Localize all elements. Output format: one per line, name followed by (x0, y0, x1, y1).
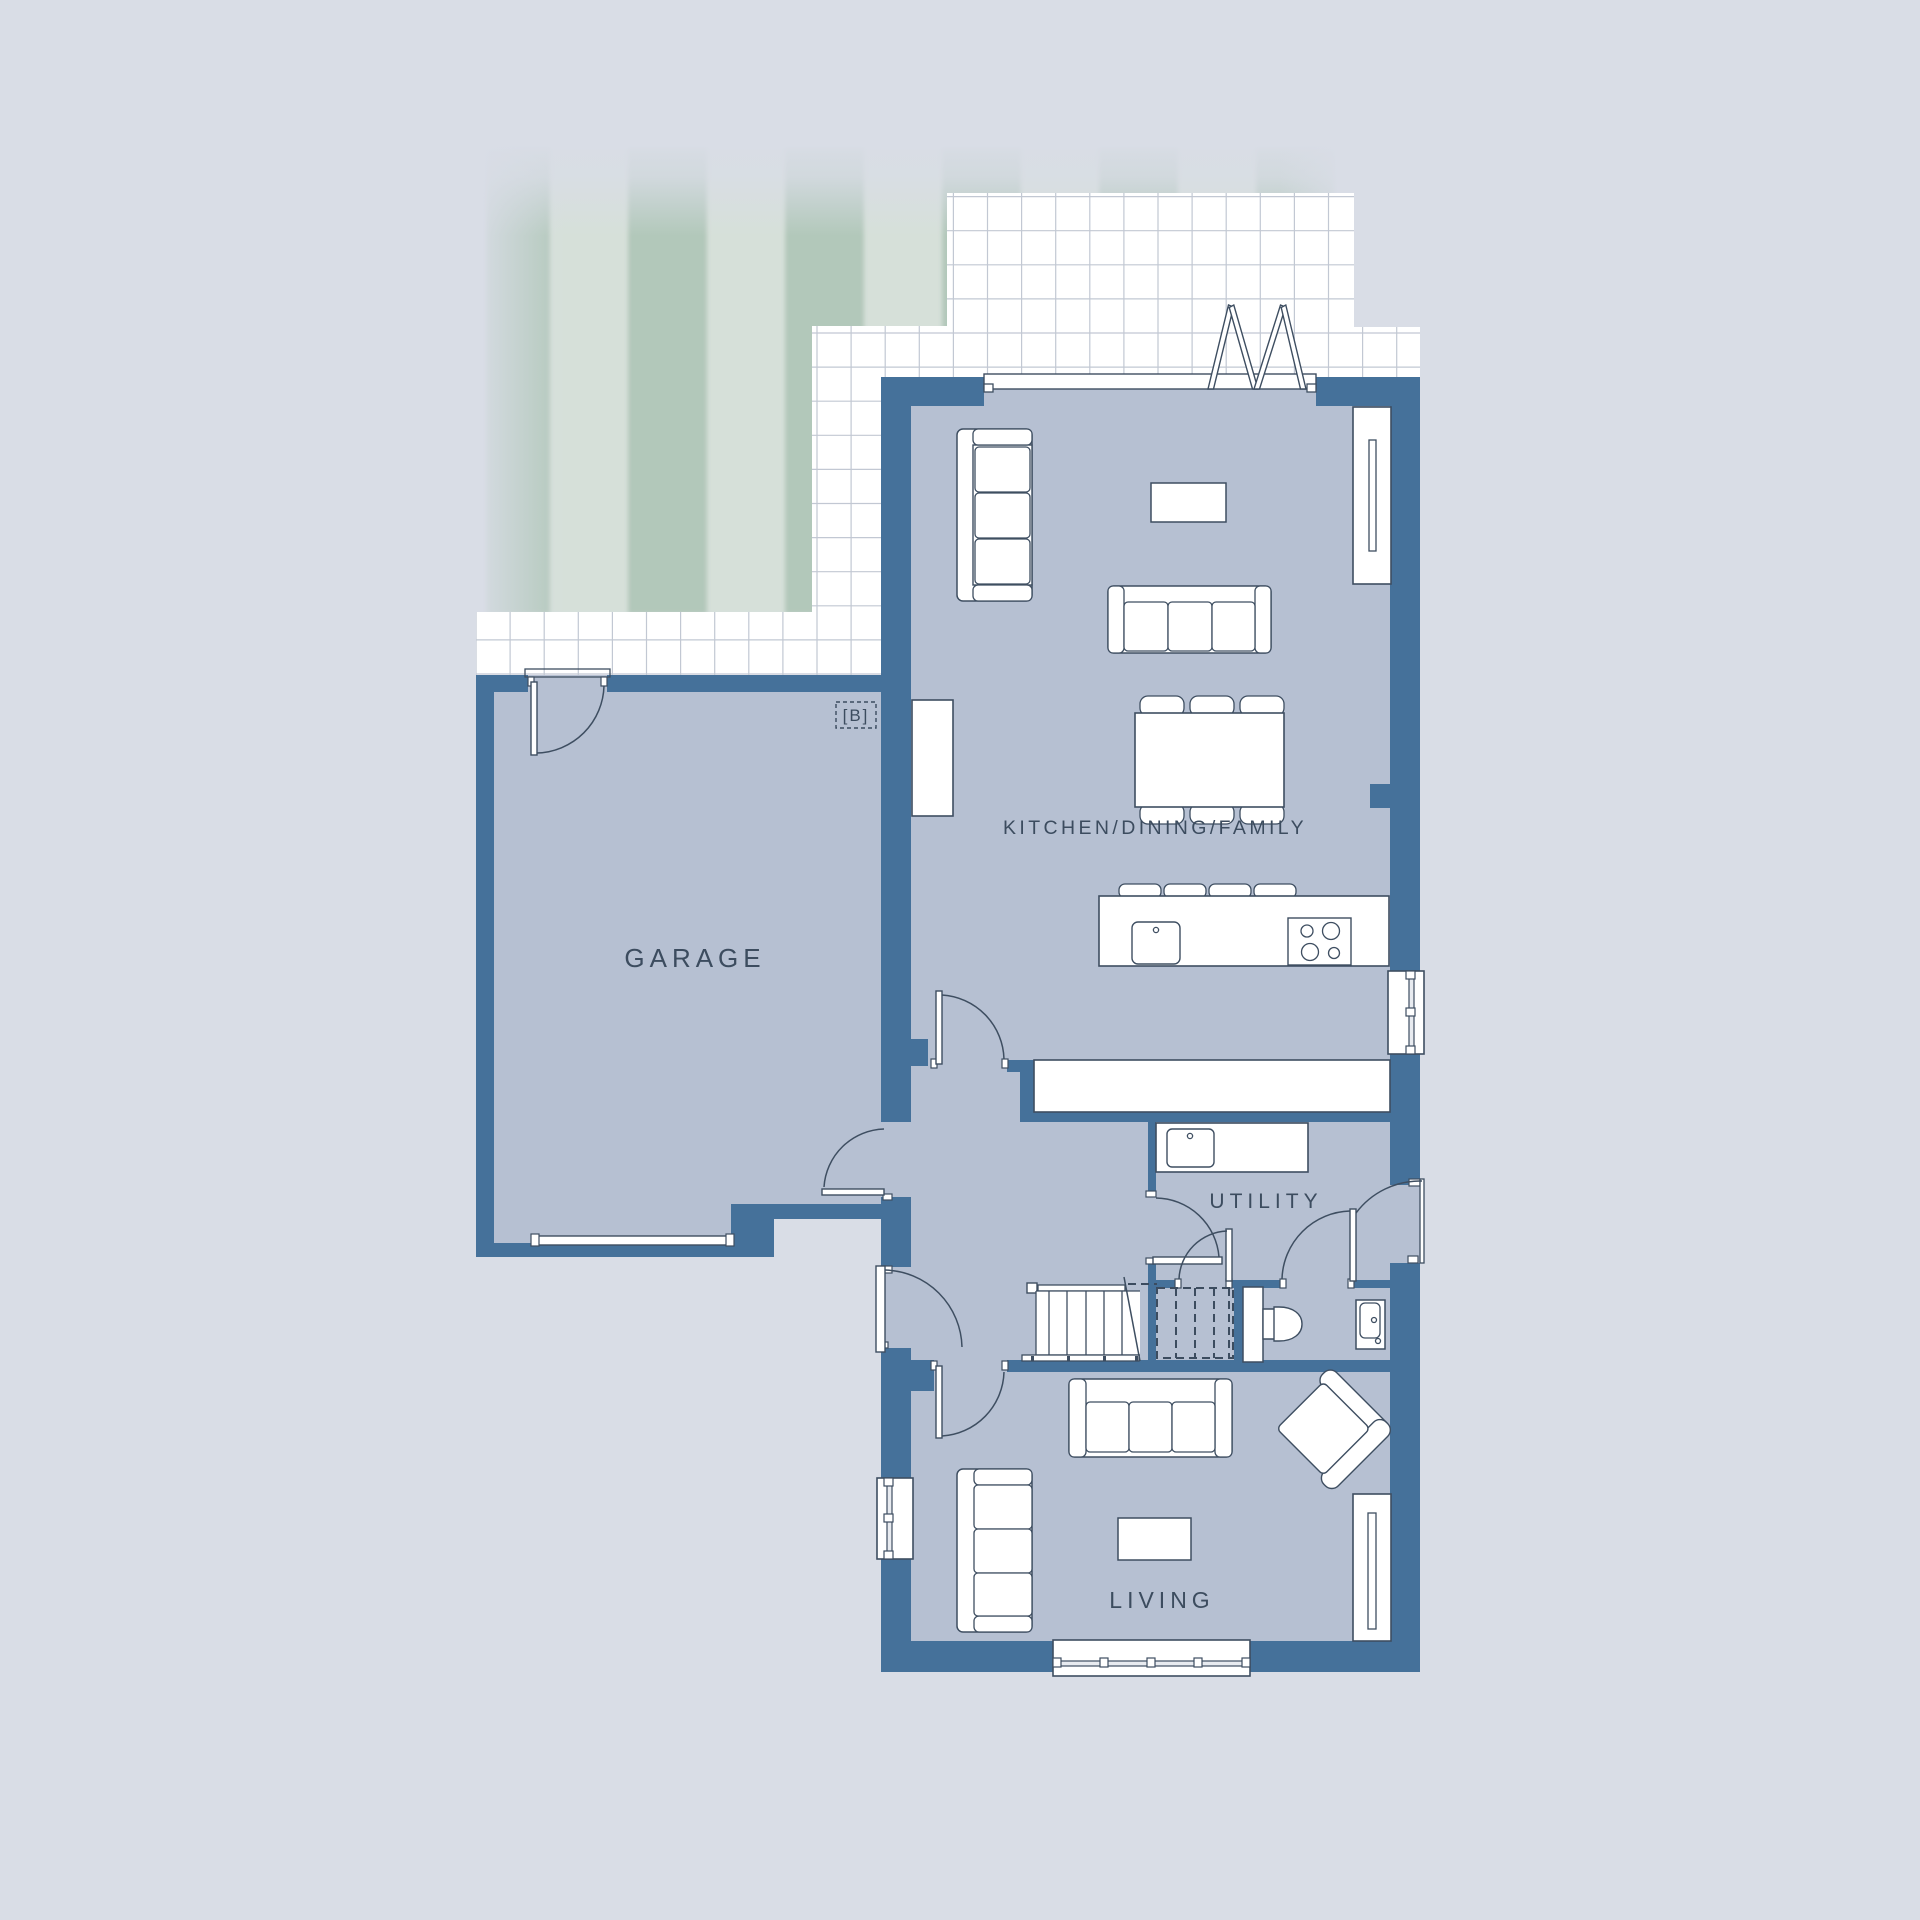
svg-text:UTILITY: UTILITY (1209, 1190, 1322, 1213)
svg-text:KITCHEN/DINING/FAMILY: KITCHEN/DINING/FAMILY (1003, 817, 1307, 839)
svg-text:[B]: [B] (843, 706, 870, 725)
svg-text:LIVING: LIVING (1109, 1587, 1214, 1613)
svg-text:GARAGE: GARAGE (624, 943, 765, 973)
